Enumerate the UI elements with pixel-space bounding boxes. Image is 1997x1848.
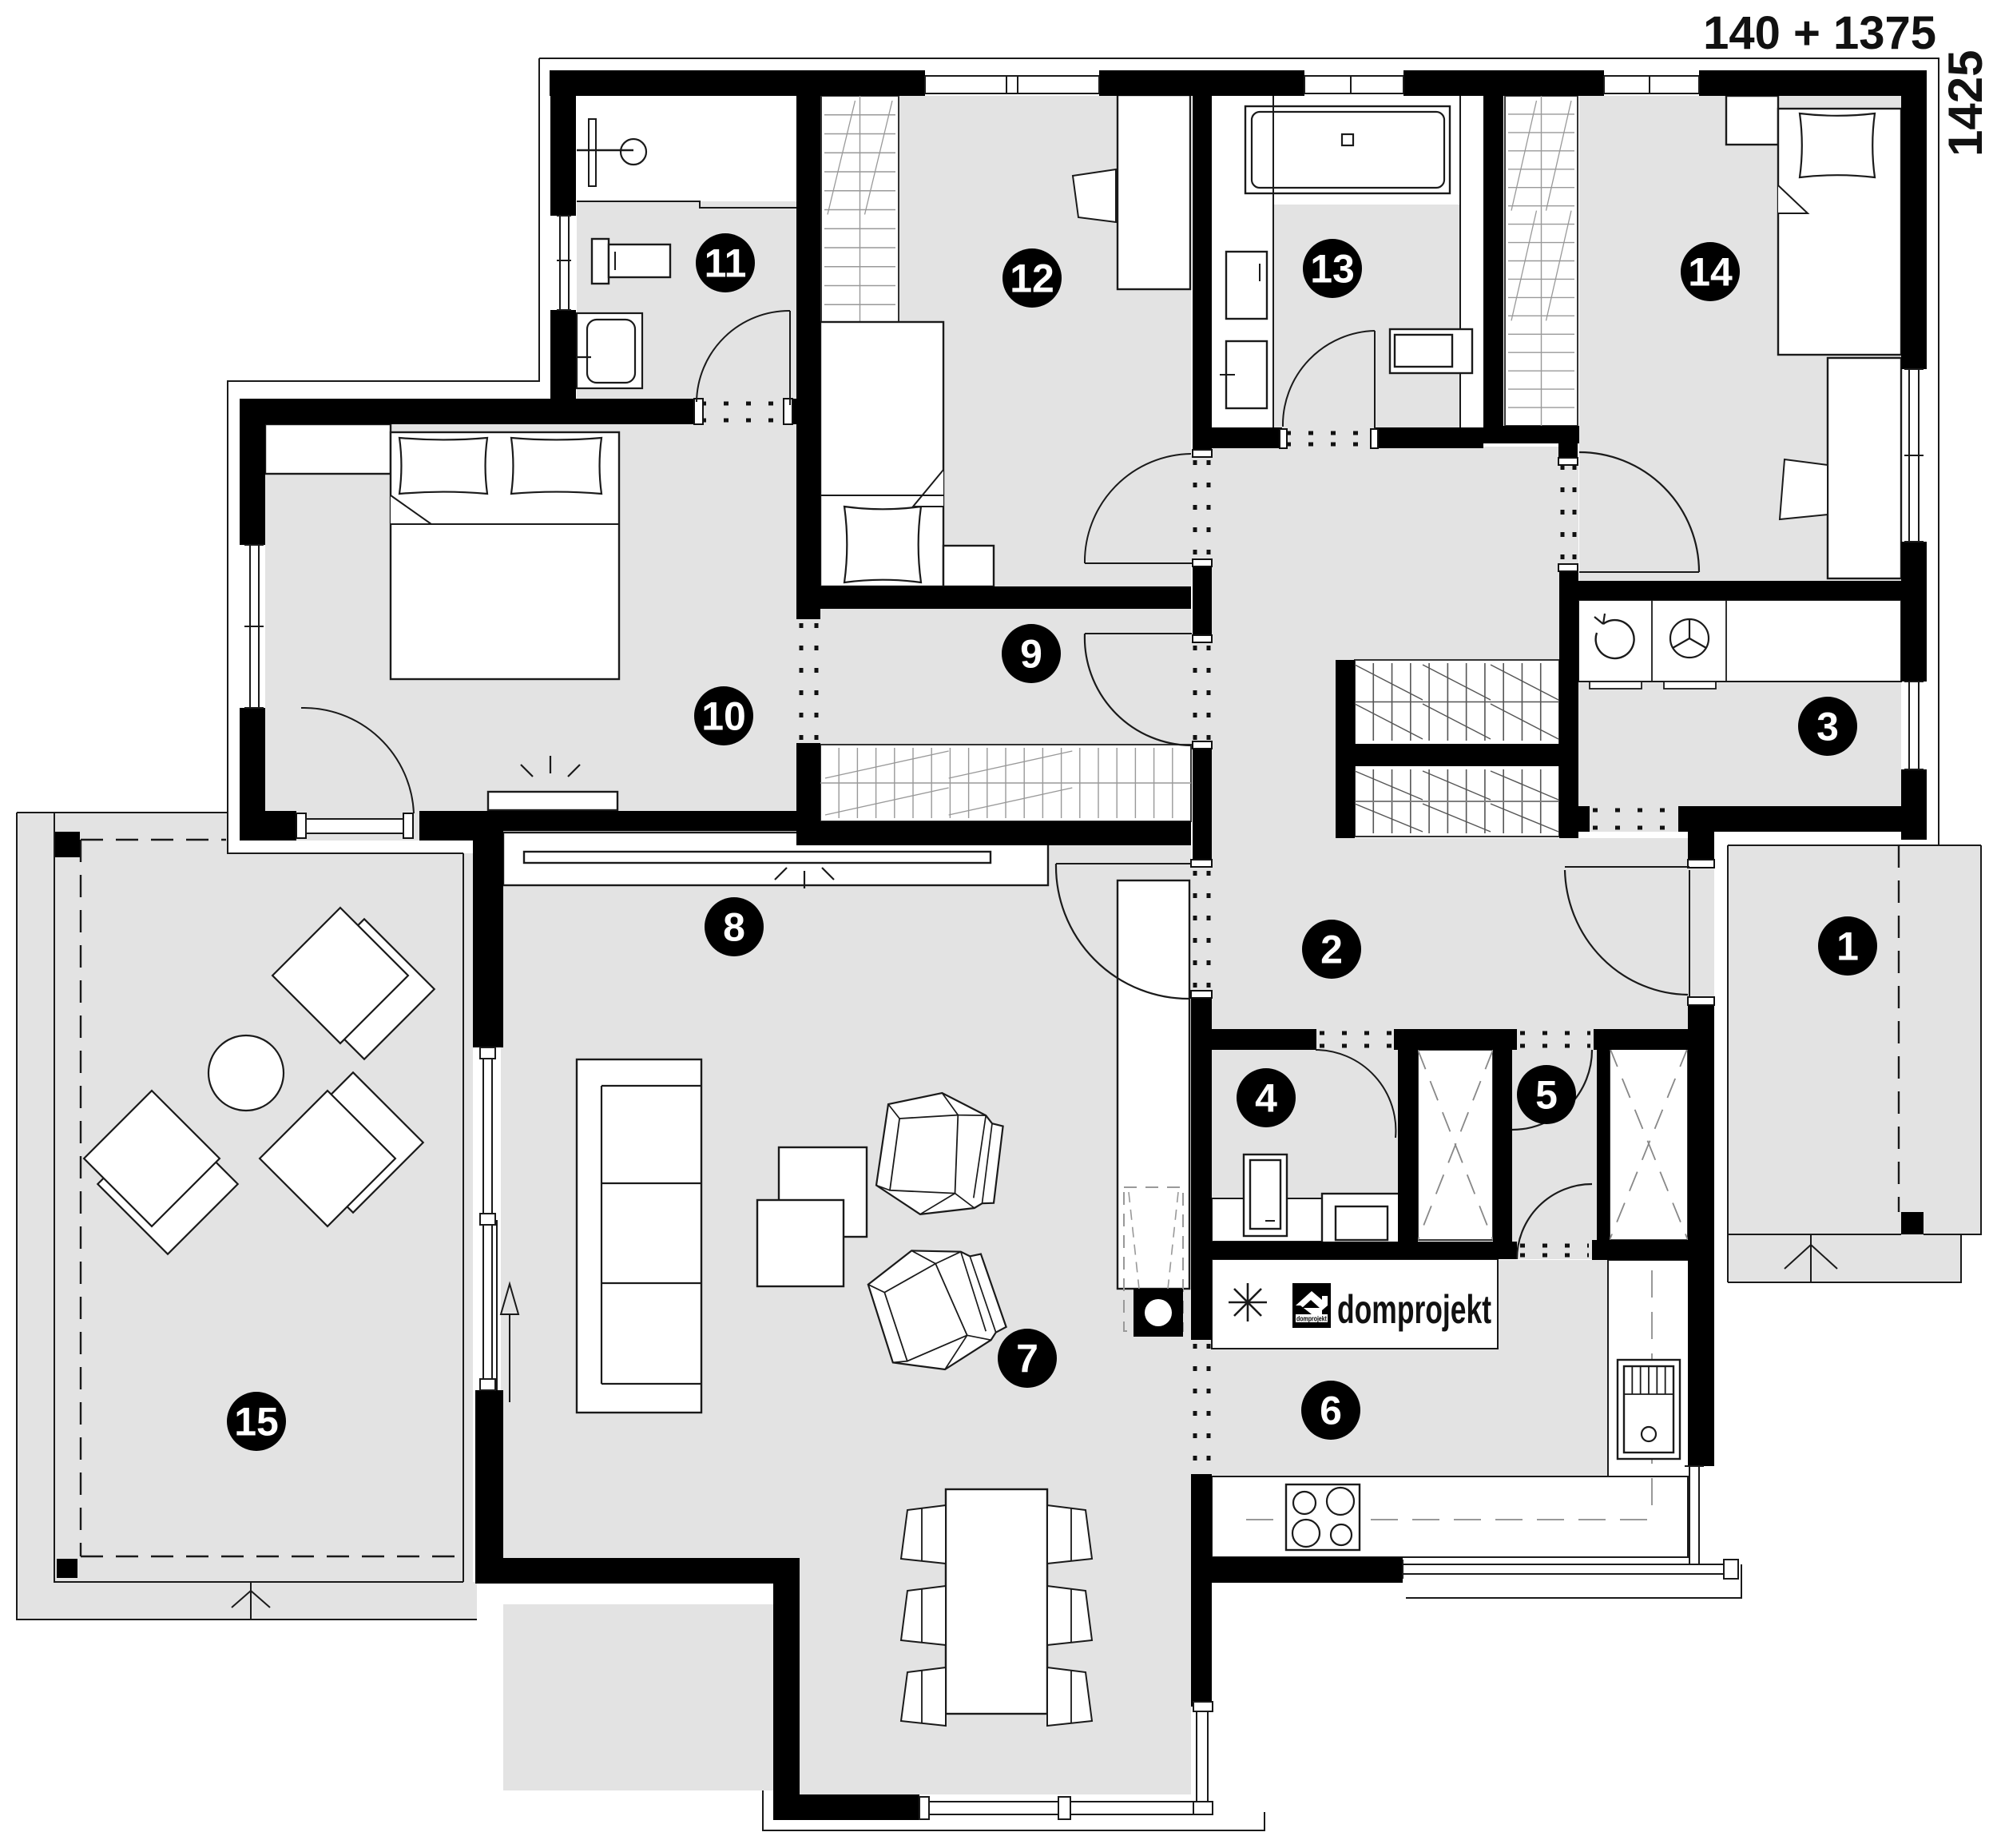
- svg-text:9: 9: [1020, 632, 1042, 677]
- svg-text:7: 7: [1016, 1337, 1038, 1381]
- svg-text:3: 3: [1816, 705, 1839, 749]
- svg-text:2: 2: [1320, 928, 1343, 972]
- svg-text:1425: 1425: [1939, 50, 1992, 157]
- svg-text:140 + 1375: 140 + 1375: [1703, 7, 1936, 59]
- svg-text:domprojekt: domprojekt: [1296, 1315, 1327, 1323]
- svg-text:11: 11: [705, 241, 747, 286]
- svg-text:12: 12: [1010, 256, 1054, 301]
- svg-text:6: 6: [1320, 1389, 1342, 1433]
- svg-text:15: 15: [234, 1400, 279, 1445]
- svg-text:5: 5: [1535, 1073, 1558, 1118]
- svg-text:8: 8: [723, 905, 745, 950]
- svg-text:14: 14: [1688, 250, 1733, 295]
- svg-text:4: 4: [1255, 1076, 1277, 1121]
- svg-text:10: 10: [701, 694, 746, 739]
- svg-text:1: 1: [1836, 924, 1859, 969]
- svg-text:13: 13: [1310, 247, 1355, 292]
- svg-text:domprojekt: domprojekt: [1337, 1287, 1491, 1332]
